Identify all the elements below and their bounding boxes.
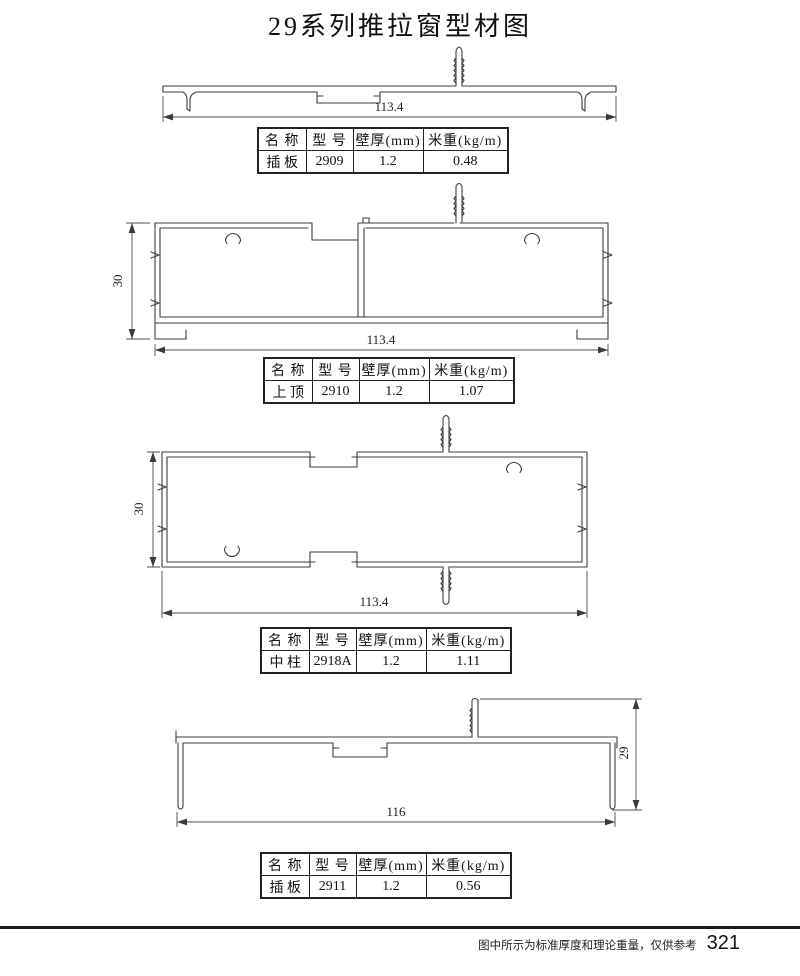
- cell-thickness: 1.2: [356, 876, 426, 899]
- header-model: 型 号: [309, 628, 356, 651]
- drawing-2910: 113.4 30: [110, 184, 612, 357]
- table-row: 插 板 2909 1.2 0.48: [258, 151, 508, 174]
- profile-outline-2910: [155, 218, 608, 339]
- dim-width-label-2909: 113.4: [375, 99, 404, 114]
- profile-outline-2918A: [162, 452, 587, 567]
- screw-bosses-2918A: [225, 463, 522, 557]
- cell-thickness: 1.2: [359, 381, 429, 404]
- header-thickness: 壁厚(mm): [353, 128, 423, 151]
- dim-width-label-2918A: 113.4: [360, 594, 389, 609]
- dim-width-label-2911: 116: [386, 804, 406, 819]
- cell-weight: 0.48: [423, 151, 508, 174]
- cell-profile-name: 中 柱: [261, 651, 309, 674]
- cell-model: 2909: [306, 151, 353, 174]
- header-name: 名 称: [264, 358, 312, 381]
- footer-note: 图中所示为标准厚度和理论重量，仅供参考: [478, 937, 697, 953]
- header-model: 型 号: [309, 853, 356, 876]
- dim-height-label-2911: 29: [616, 747, 631, 760]
- header-name: 名 称: [261, 628, 309, 651]
- drawing-2911: 116 29: [176, 699, 642, 828]
- header-thickness: 壁厚(mm): [359, 358, 429, 381]
- spec-table-2910: 名 称 型 号 壁厚(mm) 米重(kg/m) 上 顶 2910 1.2 1.0…: [263, 357, 515, 404]
- table-row: 中 柱 2918A 1.2 1.11: [261, 651, 511, 674]
- serrated-fin-2911: [470, 699, 478, 738]
- spec-table-2918A: 名 称 型 号 壁厚(mm) 米重(kg/m) 中 柱 2918A 1.2 1.…: [260, 627, 512, 674]
- header-weight: 米重(kg/m): [429, 358, 514, 381]
- profile-outline-2911: [176, 731, 617, 809]
- dim-width-label-2910: 113.4: [367, 332, 396, 347]
- cell-model: 2918A: [309, 651, 356, 674]
- spec-table-2911: 名 称 型 号 壁厚(mm) 米重(kg/m) 插 板 2911 1.2 0.5…: [260, 852, 512, 899]
- serrated-fins-2918A: [441, 416, 451, 605]
- header-model: 型 号: [312, 358, 359, 381]
- dim-height-label-2918A: 30: [131, 503, 146, 516]
- header-name: 名 称: [258, 128, 306, 151]
- cell-profile-name: 插 板: [258, 151, 306, 174]
- catalog-page: 29系列推拉窗型材图 113.4 113.4 30: [0, 0, 800, 976]
- table-row: 插 板 2911 1.2 0.56: [261, 876, 511, 899]
- dim-height-label-2910: 30: [110, 275, 125, 288]
- cell-model: 2911: [309, 876, 356, 899]
- dimension-arrows-2911: [177, 699, 639, 825]
- footer: 图中所示为标准厚度和理论重量，仅供参考 321: [0, 926, 800, 955]
- header-thickness: 壁厚(mm): [356, 853, 426, 876]
- cell-weight: 1.07: [429, 381, 514, 404]
- cell-model: 2910: [312, 381, 359, 404]
- serrated-fin-2909: [454, 47, 464, 86]
- header-weight: 米重(kg/m): [426, 628, 511, 651]
- drawing-2918A: 113.4 30: [131, 416, 587, 619]
- cell-profile-name: 上 顶: [264, 381, 312, 404]
- spec-table-2909: 名 称 型 号 壁厚(mm) 米重(kg/m) 插 板 2909 1.2 0.4…: [257, 127, 509, 174]
- cell-thickness: 1.2: [353, 151, 423, 174]
- header-weight: 米重(kg/m): [423, 128, 508, 151]
- header-weight: 米重(kg/m): [426, 853, 511, 876]
- header-name: 名 称: [261, 853, 309, 876]
- cell-profile-name: 插 板: [261, 876, 309, 899]
- table-row: 上 顶 2910 1.2 1.07: [264, 381, 514, 404]
- screw-bosses-2910: [226, 234, 540, 244]
- page-number: 321: [707, 932, 740, 955]
- header-thickness: 壁厚(mm): [356, 628, 426, 651]
- cell-thickness: 1.2: [356, 651, 426, 674]
- cell-weight: 1.11: [426, 651, 511, 674]
- dimension-lines-2911: [177, 699, 642, 827]
- cell-weight: 0.56: [426, 876, 511, 899]
- wall-break-marks-2918A: [158, 484, 586, 532]
- wall-break-marks-2910: [151, 252, 612, 306]
- serrated-fin-2910: [454, 184, 464, 224]
- drawing-2909: 113.4: [163, 47, 616, 122]
- dimension-arrows-2918A: [150, 452, 587, 616]
- header-model: 型 号: [306, 128, 353, 151]
